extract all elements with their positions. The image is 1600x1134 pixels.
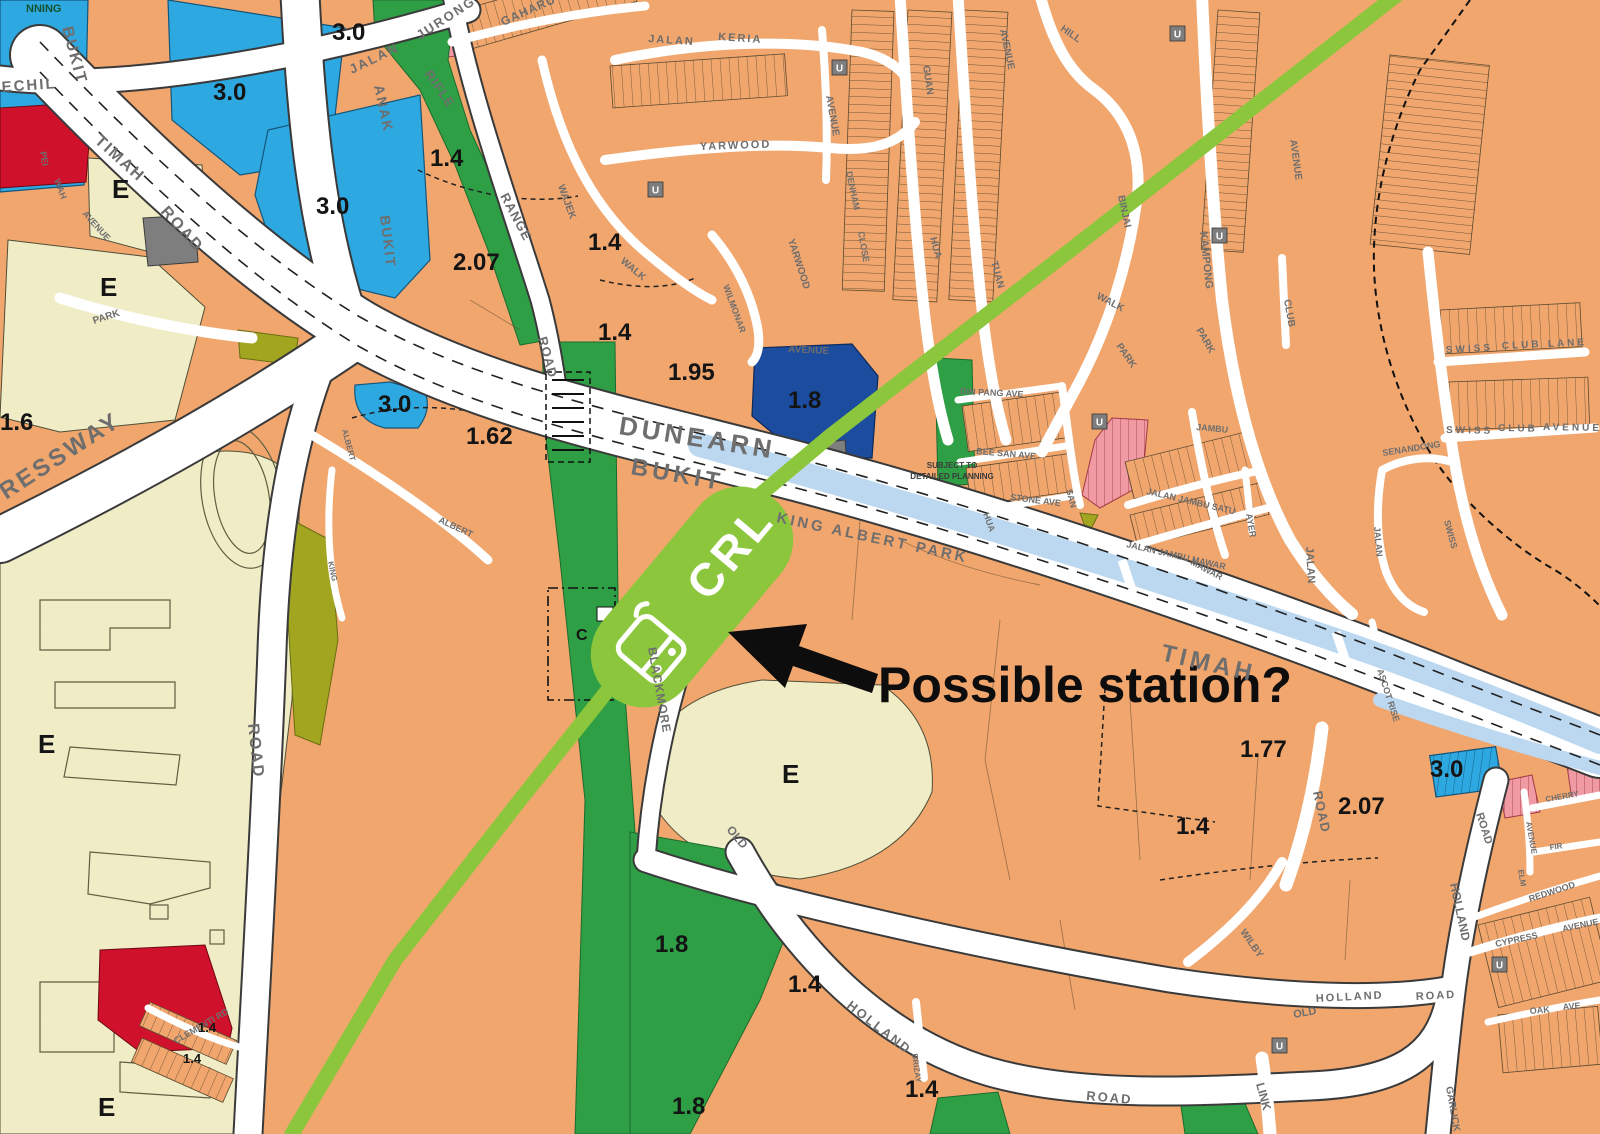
road-label: FIR bbox=[1549, 841, 1563, 852]
zone-letter-label: E bbox=[38, 729, 55, 759]
plot-ratio-label: 2.07 bbox=[453, 249, 500, 276]
utility-marker-label: U bbox=[836, 64, 843, 75]
utility-marker-label: U bbox=[1174, 30, 1181, 41]
master-plan-map: CRL Possible station? SUBJECT TO DETAILE… bbox=[0, 0, 1600, 1134]
road-label: AVENUE bbox=[788, 344, 830, 357]
utility-marker: U bbox=[1212, 228, 1227, 243]
plot-ratio-label: 1.77 bbox=[1240, 736, 1287, 763]
plot-ratio-label: 3.0 bbox=[1430, 756, 1463, 783]
zone-letter-label: C bbox=[576, 627, 588, 644]
plot-ratio-label: 1.4 bbox=[905, 1076, 939, 1103]
road-label: YARWOOD bbox=[700, 139, 772, 153]
plot-ratio-label: 2.07 bbox=[1338, 793, 1385, 820]
plot-ratio-label: 1.4 bbox=[588, 229, 622, 256]
utility-marker-label: U bbox=[1496, 961, 1503, 972]
plot-ratio-label: 1.4 bbox=[598, 319, 632, 346]
road-label: ROAD bbox=[1416, 989, 1457, 1003]
zone-letter-label: E bbox=[100, 272, 117, 302]
utility-marker: U bbox=[832, 60, 847, 75]
utility-marker-label: U bbox=[1276, 1042, 1283, 1053]
plot-ratio-label: 3.0 bbox=[332, 19, 365, 46]
zone-letter-label: E bbox=[782, 759, 799, 789]
road-label: AVE bbox=[1562, 1000, 1581, 1012]
plot-ratio-label: 1.95 bbox=[668, 359, 715, 386]
plot-ratio-label: 1.4 bbox=[788, 971, 822, 998]
road-label: CLUB bbox=[1498, 423, 1538, 435]
road-label: JALAN bbox=[1303, 547, 1317, 584]
road-label: AVENUE bbox=[1543, 422, 1600, 434]
zone-letter-label: E bbox=[98, 1092, 115, 1122]
plot-ratio-label: 1.62 bbox=[466, 423, 513, 450]
planning-note-line2: DETAILED PLANNING bbox=[910, 472, 993, 481]
plot-ratio-label: 1.8 bbox=[788, 387, 821, 414]
zone-letter-label: E bbox=[112, 174, 129, 204]
utility-marker-label: U bbox=[1096, 418, 1103, 429]
utility-marker-label: U bbox=[1216, 232, 1223, 243]
utility-marker: U bbox=[1492, 957, 1507, 972]
plot-ratio-label: 1.4 bbox=[1176, 813, 1210, 840]
utility-marker: U bbox=[1170, 26, 1185, 41]
plot-ratio-label: 3.0 bbox=[316, 193, 349, 220]
road-label: SWISS bbox=[1446, 425, 1493, 437]
utility-marker: U bbox=[1272, 1038, 1287, 1053]
utility-marker-label: U bbox=[652, 186, 659, 197]
road-label: OAK bbox=[1529, 1004, 1550, 1016]
planning-fragment-label: NNING bbox=[26, 3, 61, 15]
plot-ratio-label: 1.4 bbox=[183, 1051, 202, 1066]
plot-ratio-label: 3.0 bbox=[378, 391, 411, 418]
planning-note-line1: SUBJECT TO bbox=[927, 461, 978, 470]
road-label: CLUB bbox=[1502, 339, 1542, 352]
plot-ratio-label: 1.4 bbox=[198, 1020, 217, 1035]
plot-ratio-label: 1.8 bbox=[655, 931, 688, 958]
plot-ratio-label: 1.6 bbox=[0, 409, 33, 436]
plot-ratio-label: 1.8 bbox=[672, 1093, 705, 1120]
utility-marker: U bbox=[1092, 414, 1107, 429]
map-screenshot: CRL Possible station? SUBJECT TO DETAILE… bbox=[0, 0, 1600, 1134]
plot-ratio-label: 3.0 bbox=[213, 79, 246, 106]
utility-marker: U bbox=[648, 182, 663, 197]
plot-ratio-label: 1.4 bbox=[430, 145, 464, 172]
road-label: LANE bbox=[1548, 337, 1588, 350]
